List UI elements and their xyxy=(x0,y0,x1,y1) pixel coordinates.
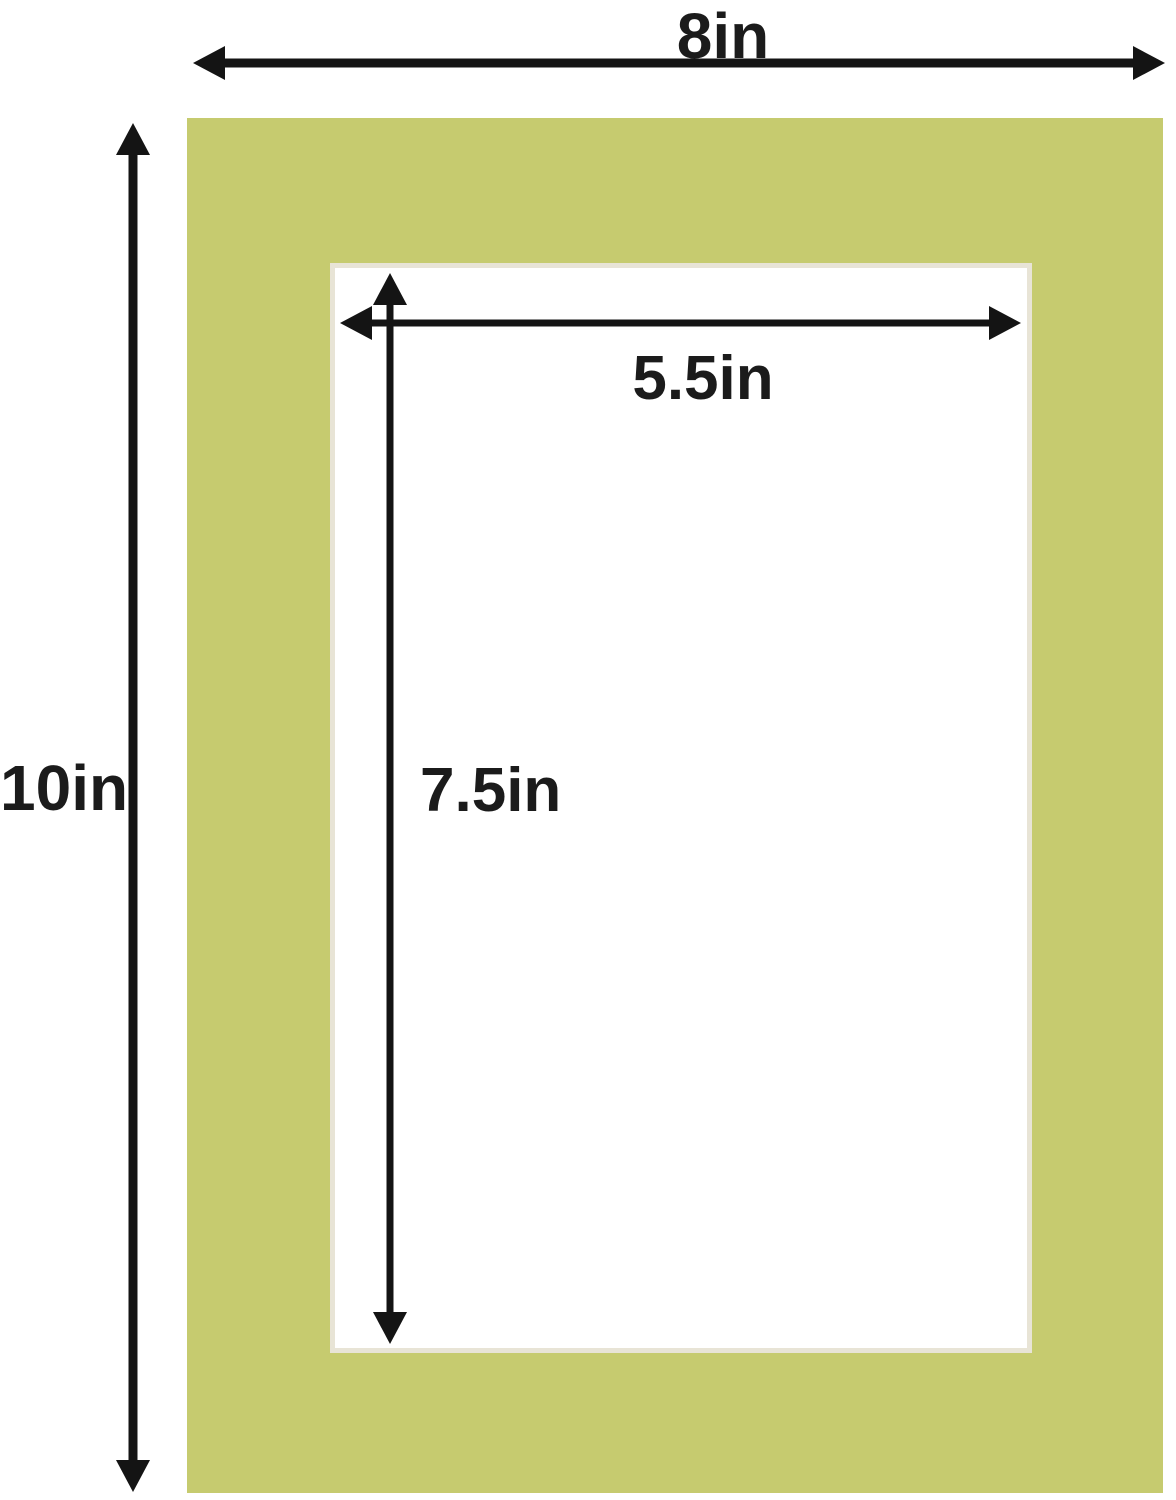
opening-height-label: 7.5in xyxy=(420,760,561,822)
outer-width-label: 8in xyxy=(677,4,769,68)
outer-height-label: 10in xyxy=(0,756,128,820)
opening-width-label: 5.5in xyxy=(632,348,773,410)
diagram-canvas: 8in 10in 5.5in 7.5in xyxy=(0,0,1176,1500)
